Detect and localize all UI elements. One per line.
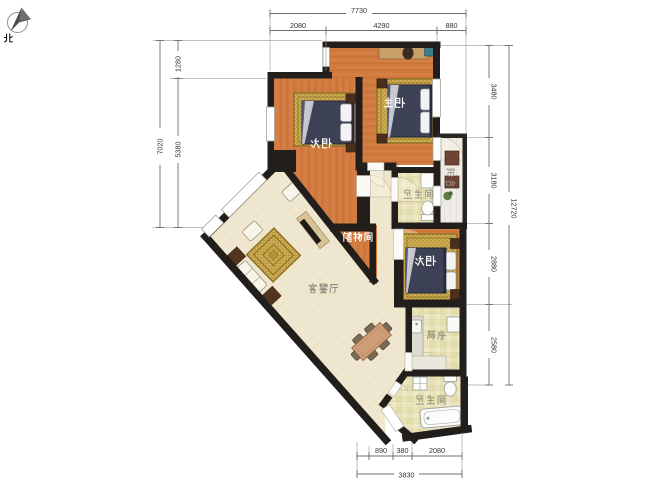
svg-text:7020: 7020 [156, 139, 165, 155]
svg-text:3830: 3830 [399, 471, 415, 480]
svg-text:2080: 2080 [429, 446, 445, 455]
svg-text:12720: 12720 [510, 199, 519, 219]
svg-text:2880: 2880 [490, 256, 499, 272]
svg-text:1280: 1280 [174, 56, 183, 72]
svg-text:3480: 3480 [490, 84, 499, 100]
svg-text:380: 380 [397, 446, 409, 455]
svg-text:890: 890 [375, 446, 387, 455]
svg-text:880: 880 [446, 21, 458, 30]
svg-text:2580: 2580 [490, 337, 499, 353]
svg-text:2080: 2080 [290, 21, 306, 30]
svg-text:7730: 7730 [351, 6, 367, 15]
svg-text:4290: 4290 [374, 21, 390, 30]
svg-text:5380: 5380 [174, 142, 183, 158]
svg-text:3180: 3180 [490, 173, 499, 189]
